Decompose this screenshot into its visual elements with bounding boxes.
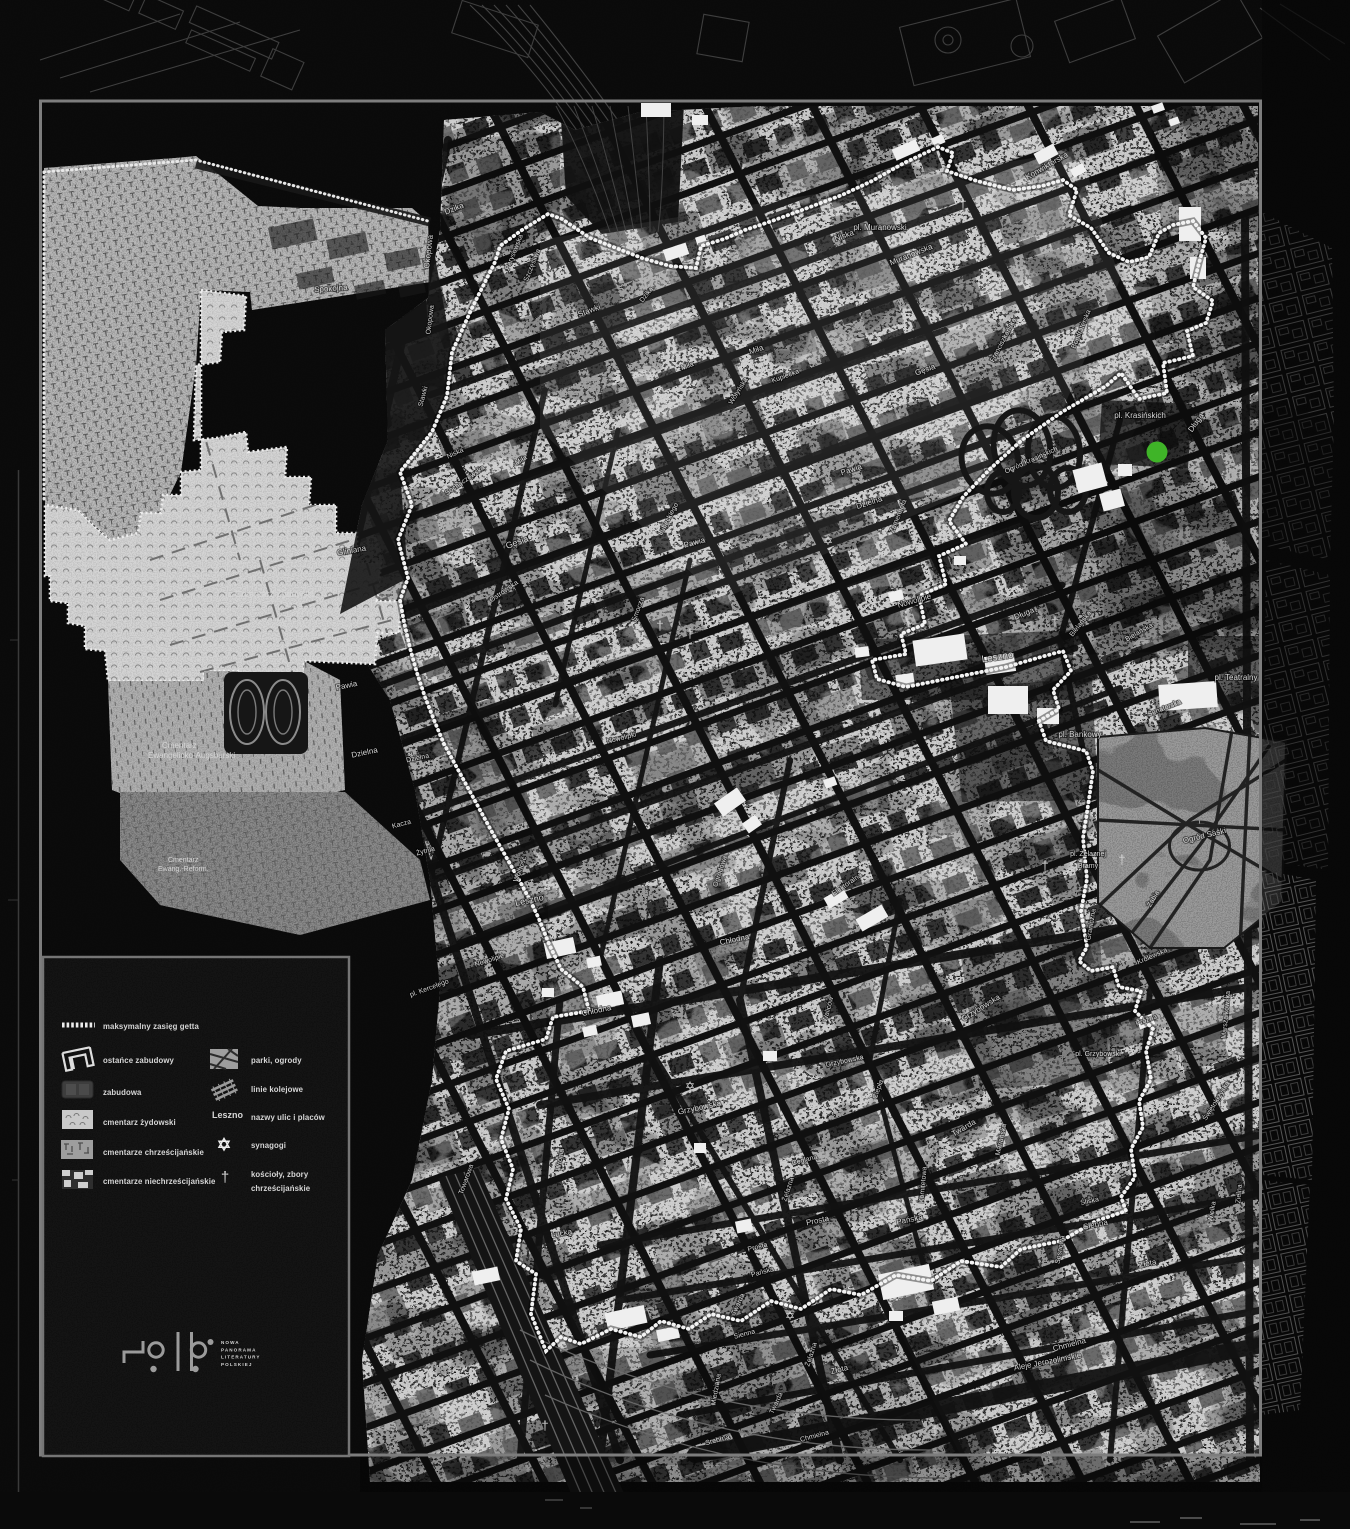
- svg-text:pl. Teatralny: pl. Teatralny: [1215, 673, 1258, 682]
- svg-text:✡: ✡: [823, 534, 833, 548]
- svg-text:†: †: [1041, 858, 1048, 873]
- svg-text:nazwy ulic i placów: nazwy ulic i placów: [251, 1113, 326, 1122]
- svg-text:pl. Krasińskich: pl. Krasińskich: [1114, 411, 1166, 420]
- svg-text:chrześcijańskie: chrześcijańskie: [251, 1184, 311, 1193]
- svg-text:pl. Grzybowski: pl. Grzybowski: [1075, 1051, 1121, 1058]
- svg-text:†: †: [656, 618, 663, 633]
- svg-text:Bramy: Bramy: [1078, 863, 1099, 870]
- svg-text:✡: ✡: [845, 701, 855, 715]
- svg-text:†: †: [221, 1169, 229, 1186]
- svg-text:Cmentarz: Cmentarz: [168, 857, 199, 864]
- svg-text:c Cmentarz Żydowski: c Cmentarz Żydowski: [228, 589, 314, 599]
- svg-text:linie kolejowe: linie kolejowe: [251, 1085, 304, 1094]
- svg-text:✡: ✡: [685, 1079, 695, 1093]
- svg-text:LITERATURY: LITERATURY: [221, 1355, 261, 1360]
- svg-text:pl. Muranowski: pl. Muranowski: [853, 223, 907, 232]
- svg-text:†: †: [676, 424, 683, 439]
- svg-text:cmentarze niechrześcijańskie: cmentarze niechrześcijańskie: [103, 1177, 216, 1186]
- svg-text:Ewang.-Reform.: Ewang.-Reform.: [158, 866, 209, 873]
- svg-text:†: †: [1118, 852, 1125, 867]
- svg-text:Ewangelicko-Augsburski: Ewangelicko-Augsburski: [148, 751, 235, 760]
- svg-text:maksymalny zasięg getta: maksymalny zasięg getta: [103, 1022, 199, 1031]
- svg-text:†: †: [931, 1423, 938, 1438]
- svg-text:cmentarz żydowski: cmentarz żydowski: [103, 1118, 176, 1127]
- svg-text:kościoły, zbory: kościoły, zbory: [251, 1170, 309, 1179]
- svg-text:Cmentarz: Cmentarz: [162, 741, 197, 750]
- svg-text:cmentarze chrześcijańskie: cmentarze chrześcijańskie: [103, 1148, 204, 1157]
- svg-text:✡: ✡: [785, 1309, 795, 1323]
- svg-text:Leszno: Leszno: [212, 1110, 244, 1120]
- svg-text:†: †: [541, 1418, 548, 1433]
- svg-text:pl. Bankowy: pl. Bankowy: [1058, 730, 1101, 739]
- svg-text:POLSKIEJ: POLSKIEJ: [221, 1362, 253, 1367]
- svg-text:parki, ogrody: parki, ogrody: [251, 1056, 302, 1065]
- svg-text:zabudowa: zabudowa: [103, 1088, 142, 1097]
- svg-text:†: †: [686, 626, 693, 641]
- svg-text:†: †: [1051, 614, 1058, 629]
- svg-text:NOWA: NOWA: [221, 1340, 240, 1345]
- svg-text:ostańce zabudowy: ostańce zabudowy: [103, 1056, 174, 1065]
- svg-text:†: †: [959, 196, 966, 211]
- svg-text:PANORAMA: PANORAMA: [221, 1347, 257, 1352]
- svg-text:pl. Żelaznej: pl. Żelaznej: [1070, 849, 1106, 858]
- svg-text:synagogi: synagogi: [251, 1141, 286, 1150]
